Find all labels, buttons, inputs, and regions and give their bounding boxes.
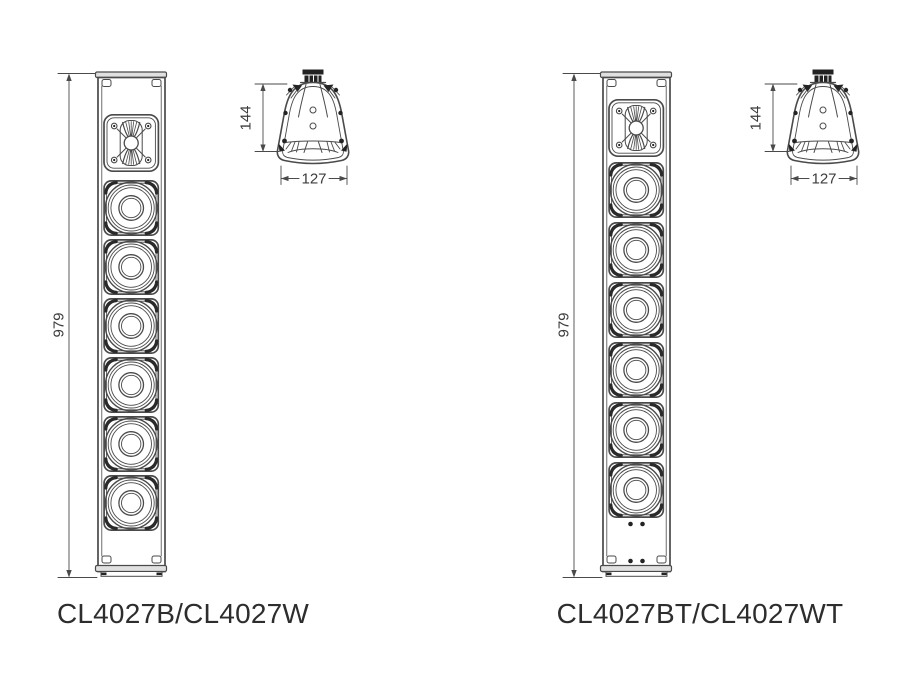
tweeter-icon: [609, 100, 663, 156]
model-label-cl4027bt: CL4027BT/CL4027WT: [555, 598, 845, 630]
front-view-drawing-cl4027b: 979: [50, 60, 185, 595]
top-view-drawing-cl4027b: 144 127: [240, 58, 375, 200]
top-view-drawing-cl4027bt: 144 127: [750, 58, 885, 200]
depth-dimension-label: 144: [240, 105, 255, 130]
front-view-drawing-cl4027bt: 979: [555, 60, 690, 595]
depth-dimension-label: 144: [750, 105, 765, 130]
width-dimension-label: 127: [301, 171, 326, 188]
tweeter-icon: [104, 115, 158, 171]
model-label-cl4027b: CL4027B/CL4027W: [38, 598, 328, 630]
height-dimension-label: 979: [51, 312, 68, 337]
spec-drawing-canvas: 979 144 127 CL4027B/CL4027W: [0, 0, 900, 674]
width-dimension-label: 127: [811, 171, 836, 188]
height-dimension-label: 979: [556, 312, 573, 337]
